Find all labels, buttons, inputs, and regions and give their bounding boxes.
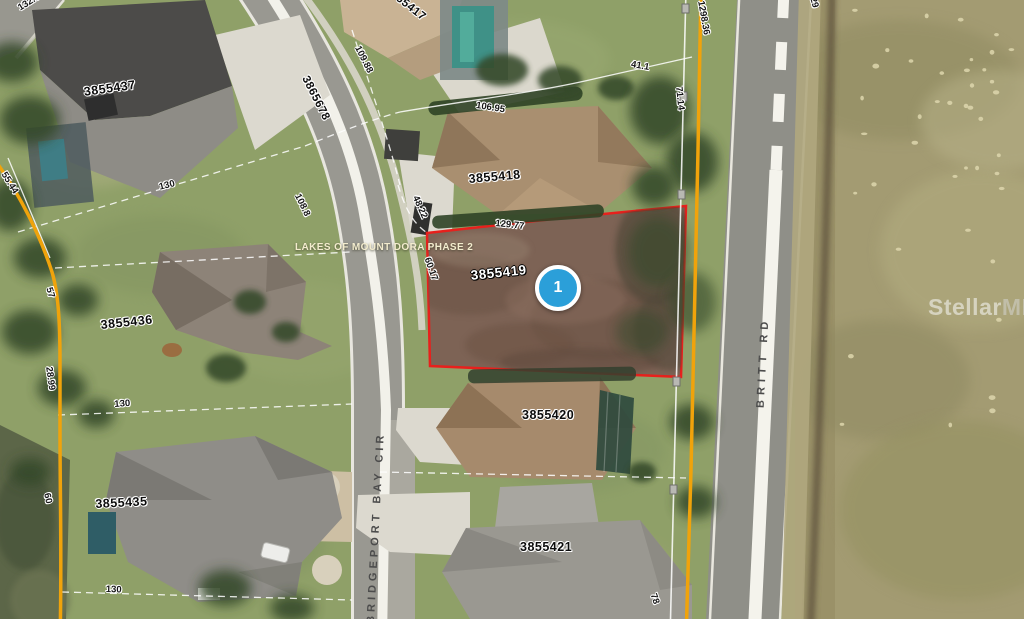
aerial-parcel-map: 3855437 3855436 3855435 3855418 3855419 …: [0, 0, 1024, 619]
stellar-mls-watermark: StellarMLS: [928, 294, 1024, 321]
house-3855437: [26, 0, 238, 208]
listing-marker[interactable]: 1: [535, 265, 581, 311]
aerial-imagery-layer: [0, 0, 1024, 619]
house-3855421: [442, 483, 692, 619]
listing-marker-number: 1: [554, 279, 563, 297]
watermark-brand: Stellar: [928, 294, 1002, 320]
watermark-suffix: MLS: [1002, 294, 1024, 320]
house-3855420: [436, 377, 636, 480]
